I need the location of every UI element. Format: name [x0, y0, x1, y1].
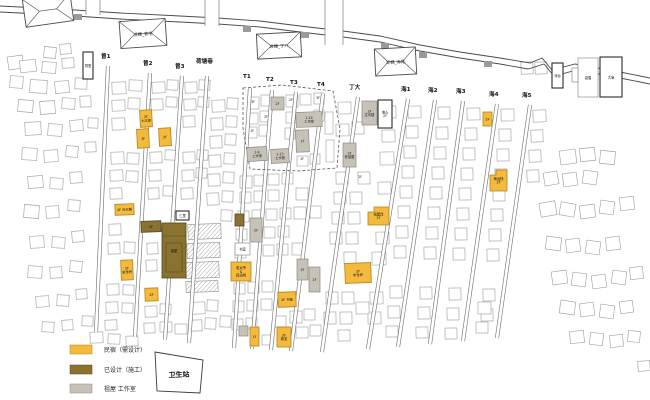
parcel — [344, 252, 356, 264]
building-w-34: 仁里 — [176, 211, 189, 220]
parcel — [457, 208, 469, 220]
pier — [86, 0, 100, 15]
parcel — [579, 147, 595, 161]
parcel — [304, 309, 315, 320]
parcel — [151, 99, 163, 110]
parcel — [326, 140, 334, 162]
building-g-22: 2F文青楼 — [362, 101, 377, 125]
parcel — [128, 98, 140, 109]
parcel — [62, 98, 76, 110]
parcel — [491, 209, 503, 221]
building-y-12: 海运栈2F — [490, 170, 507, 191]
parcel — [52, 237, 66, 249]
parcel — [501, 109, 514, 121]
parcel — [110, 170, 123, 181]
parcel — [296, 327, 308, 338]
parcel — [82, 316, 93, 326]
building-p-33: 书室 — [235, 243, 250, 255]
building-w-30: 戏台 — [552, 63, 563, 88]
parcel — [416, 327, 428, 338]
parcel — [476, 322, 488, 333]
building-g-24: 2F — [297, 259, 308, 280]
parcel — [145, 306, 157, 317]
parcel — [430, 187, 442, 199]
parcel — [220, 316, 231, 327]
building-g-23: 2F — [250, 218, 262, 242]
building-y-11: 祖屋改2F — [368, 207, 389, 225]
pavilions: 凉棚_曾宅凉棚_丁八凉棚_海尾 — [22, 0, 416, 76]
street-label: T4 — [317, 82, 325, 88]
parcel — [609, 334, 623, 347]
parcel — [497, 149, 509, 161]
parcel — [126, 171, 138, 182]
parcel — [66, 146, 79, 158]
parcel — [42, 62, 57, 74]
parcel — [48, 124, 63, 137]
building-b-16 — [235, 214, 244, 226]
street-lane — [96, 66, 108, 332]
parcel — [627, 330, 640, 342]
building-label: 新世界 — [353, 272, 364, 277]
parcel — [569, 330, 584, 343]
site-plan-svg: 凉棚_曾宅凉棚_丁八凉棚_海尾2F七太婆1F2F2F 白天鹅2F金世界2F老太爷… — [0, 0, 650, 400]
building-label: 2F — [149, 293, 153, 297]
parcel — [126, 336, 138, 346]
parcel — [268, 174, 279, 185]
dock-step — [419, 52, 427, 58]
parcel — [378, 182, 391, 194]
parcel — [88, 118, 98, 128]
parcel — [382, 130, 395, 142]
legend-label-studio: 祖屋 工作室 — [104, 385, 136, 393]
building-label: 2F — [377, 216, 381, 220]
parcel — [599, 304, 615, 319]
building-p-32: 祖厝 — [578, 58, 598, 97]
parcel — [107, 284, 119, 295]
building-label: 新发 — [281, 336, 288, 341]
building-g-21: 2F老祖屋 — [343, 143, 356, 167]
parcel — [325, 112, 333, 134]
parcel — [559, 149, 577, 165]
parcel — [10, 76, 24, 89]
parcel — [24, 204, 40, 218]
dock-step — [301, 32, 309, 38]
parcel — [551, 270, 568, 285]
parcel — [123, 285, 134, 295]
parcel — [531, 130, 543, 142]
parcel — [388, 306, 400, 318]
parcel — [221, 210, 232, 221]
legend-label-designed: 已设计（施工） — [104, 366, 146, 374]
parcel — [527, 170, 539, 182]
parcel — [390, 286, 402, 298]
parcel — [50, 178, 64, 190]
building-label: 金世界 — [122, 269, 133, 274]
building-label: 祖厝 — [585, 75, 592, 80]
parcel — [150, 152, 162, 163]
parcel — [402, 166, 414, 178]
parcel — [222, 191, 233, 202]
parcel — [46, 206, 60, 219]
parcel — [30, 80, 48, 94]
pavilion: 凉棚_海尾 — [374, 47, 416, 76]
parcel — [122, 303, 133, 313]
parcel — [449, 288, 461, 300]
parcel — [350, 192, 362, 204]
parcel — [165, 150, 176, 160]
parcel — [167, 80, 178, 90]
parcel — [579, 204, 596, 219]
parcel — [70, 120, 84, 132]
legend-swatch-designed — [70, 365, 92, 374]
parcel — [111, 152, 124, 164]
parcel — [181, 188, 193, 199]
building-label: 2F — [163, 135, 167, 139]
parcel — [57, 295, 70, 307]
parcel — [310, 325, 321, 336]
parcel — [266, 209, 277, 220]
parcel — [129, 80, 142, 91]
parcel — [183, 116, 195, 127]
building-label: 书室 — [239, 246, 246, 251]
building-y-9: 2F新发 — [277, 327, 291, 347]
building-label: 工作室 — [304, 119, 315, 124]
building-g-25: 2F — [309, 267, 320, 292]
parcel — [565, 238, 581, 253]
parcel — [611, 270, 627, 285]
parcel — [42, 322, 55, 333]
parcel — [30, 236, 45, 249]
parcel — [185, 82, 197, 93]
parcel — [478, 302, 491, 314]
building-label: 1F — [300, 139, 304, 143]
building-g-27: 2F — [271, 97, 284, 110]
parcel — [294, 207, 306, 219]
building-label: 2F 书屋 — [281, 297, 294, 302]
parcel — [386, 326, 398, 337]
parcel — [110, 188, 122, 199]
parcel — [60, 44, 72, 55]
legend-swatch-studio — [70, 384, 92, 393]
street-label: 海4 — [489, 90, 499, 98]
floor-label: 2F — [358, 175, 362, 179]
parcel — [310, 206, 321, 218]
parcel — [25, 122, 42, 136]
pavilion: 凉棚_曾宅 — [119, 18, 167, 48]
building-y-1: 1F — [137, 129, 150, 149]
street-label: 荷塘巷 — [196, 57, 213, 65]
parcel — [225, 134, 236, 145]
parcel — [108, 334, 120, 344]
building-label: 2F — [276, 102, 280, 106]
parcel — [346, 232, 358, 244]
parcel — [106, 302, 118, 313]
parcel — [184, 99, 196, 110]
street-label: 海5 — [522, 91, 532, 99]
parcel — [589, 332, 603, 345]
hatched-strip — [186, 261, 220, 278]
parcel — [149, 170, 161, 181]
parcel — [62, 58, 75, 69]
parcel — [348, 212, 360, 224]
parcel — [463, 148, 475, 160]
parcel — [146, 260, 157, 271]
parcel — [340, 312, 352, 324]
parcel — [264, 227, 275, 238]
building-y-3: 2F 白天鹅 — [115, 204, 134, 216]
legend: 民宿（需设计） 已设计（施工） 祖屋 工作室 — [70, 345, 146, 393]
parcel — [80, 96, 91, 107]
street-label: 曾3 — [175, 62, 185, 70]
parcel — [72, 231, 85, 243]
parcel — [76, 289, 88, 300]
pavilion — [22, 0, 73, 27]
building-g-17: 1-14工作室 — [296, 112, 323, 128]
parcel — [408, 106, 421, 118]
parcel — [50, 267, 63, 279]
parcel — [338, 102, 351, 114]
parcel — [599, 200, 615, 215]
parcel — [183, 152, 195, 163]
parcel — [489, 229, 501, 241]
parcel — [268, 190, 279, 201]
parcel — [152, 82, 165, 93]
building-label: 2F — [149, 225, 153, 229]
building-label: 2F — [313, 278, 317, 282]
building-w-31: 大庙 — [600, 57, 622, 97]
parcel — [342, 292, 354, 304]
building-p-35 — [572, 68, 578, 82]
street-label: 丁大 — [349, 83, 361, 91]
parcel — [459, 188, 471, 200]
building-label: 2F — [383, 114, 387, 118]
parcel — [22, 148, 38, 161]
building-label: 大庙 — [608, 74, 615, 79]
parcel — [571, 272, 587, 287]
parcel — [144, 323, 155, 333]
parcel — [192, 302, 205, 314]
parcel — [428, 207, 440, 219]
parcel — [432, 167, 444, 179]
parcel — [263, 245, 274, 256]
parcel — [90, 332, 103, 343]
parcel — [85, 142, 96, 152]
parcel — [18, 99, 34, 112]
street-label: 海2 — [428, 86, 438, 94]
parcel — [108, 243, 120, 254]
legend-label-minsu: 民宿（需设计） — [104, 346, 146, 354]
parcel — [44, 150, 59, 163]
parcel — [262, 281, 273, 292]
parcel — [543, 171, 559, 186]
building-b-14: 2F — [141, 221, 161, 233]
parcel — [398, 206, 410, 218]
parcel — [438, 107, 450, 119]
building-label: 2F — [301, 268, 305, 272]
hatched-area — [186, 223, 222, 292]
health-station: 卫生站 — [155, 352, 203, 393]
street-label: 海1 — [401, 85, 411, 93]
building-y-6: 老太爷&四志明 — [231, 262, 251, 281]
floor-label: 3F — [316, 96, 320, 100]
hatched-strip — [187, 242, 221, 258]
floor-label: 1F — [250, 129, 254, 133]
building-label: 2F — [497, 181, 501, 185]
parcel — [28, 175, 44, 188]
parcel — [562, 172, 578, 187]
floor-label: 2F — [264, 115, 268, 119]
parcel — [400, 186, 412, 198]
parcel — [223, 172, 234, 183]
legend-swatch-minsu — [70, 345, 92, 354]
parcel — [591, 274, 607, 289]
building-b-15: 祖屋 — [162, 223, 186, 278]
parcel — [436, 127, 448, 139]
floor-label: 3F — [251, 100, 255, 104]
building-y-4: 2F金世界 — [121, 260, 134, 280]
parcel — [453, 248, 465, 260]
parcel — [208, 174, 220, 186]
parcel — [336, 124, 349, 136]
parcel — [579, 302, 595, 317]
street-label: 海3 — [456, 87, 466, 95]
building-label: 祠堂 — [85, 63, 92, 68]
parcel — [105, 320, 117, 330]
parcel — [420, 287, 432, 299]
parcel — [166, 97, 177, 107]
parcel — [212, 100, 225, 112]
parcel — [535, 62, 547, 74]
parcel — [487, 249, 499, 261]
dock-step — [243, 26, 251, 32]
parcel — [210, 136, 222, 148]
parcel — [394, 246, 406, 258]
parcel — [629, 266, 643, 279]
parcel — [638, 361, 650, 372]
parcel — [396, 226, 408, 238]
parcel — [40, 100, 56, 114]
parcel — [447, 308, 459, 320]
parcel — [127, 153, 139, 164]
parcel — [404, 146, 416, 158]
parcel — [529, 150, 541, 162]
building-y-7: 2F 书屋 — [278, 292, 297, 308]
parcel — [619, 300, 634, 314]
parcel — [559, 300, 576, 315]
parcel — [62, 320, 74, 331]
parcel — [211, 118, 223, 130]
parcel — [19, 59, 36, 73]
parcel — [44, 46, 57, 58]
parcel — [406, 126, 418, 138]
parcel — [55, 80, 70, 93]
building-label: 四志明 — [236, 273, 247, 278]
parcel — [209, 155, 221, 167]
parcel — [147, 243, 158, 254]
parcel — [545, 236, 562, 251]
parcel — [356, 302, 369, 314]
parcel — [175, 324, 187, 334]
parcel — [455, 228, 467, 240]
parcel — [418, 307, 430, 319]
parcel — [619, 196, 634, 210]
building-y-10: 2F新世界 — [345, 263, 372, 284]
building-g-18: 1F — [296, 130, 310, 152]
parcel — [112, 82, 126, 94]
pier — [205, 0, 219, 26]
parcel — [112, 100, 125, 111]
street-label: T1 — [243, 74, 251, 80]
pavilion: 凉棚_丁八 — [256, 32, 301, 59]
parcel — [461, 168, 473, 180]
parcel — [70, 172, 83, 184]
parcel — [109, 224, 121, 235]
parcel — [68, 200, 81, 212]
floor-label: 1F — [300, 157, 304, 161]
hatched-strip — [188, 223, 222, 239]
parcel — [499, 129, 511, 141]
parcel — [28, 266, 43, 279]
building-label: 2F — [254, 228, 258, 232]
parcel — [296, 188, 308, 200]
building-y-5: 2F — [145, 288, 158, 301]
street-lane — [165, 76, 182, 340]
parcel — [124, 242, 135, 253]
parcel — [300, 94, 311, 105]
parcel — [585, 240, 601, 255]
parcel — [70, 261, 83, 273]
building-label: 工作室 — [275, 155, 286, 161]
parcel — [207, 193, 219, 205]
dock-step — [484, 61, 492, 67]
street-label: 曾1 — [101, 52, 111, 60]
health-station-label: 卫生站 — [168, 369, 189, 379]
parcel — [539, 201, 557, 218]
parcel — [338, 330, 350, 341]
building-g-20: 1-13工作室 — [271, 149, 290, 164]
parcel — [380, 152, 394, 165]
parcel — [205, 318, 216, 329]
parcel — [605, 236, 621, 251]
building-label: 1F — [253, 335, 257, 339]
building-label: 老祖屋 — [345, 154, 356, 159]
parcel — [426, 227, 438, 239]
parcel — [112, 118, 125, 130]
site-plan: 凉棚_曾宅凉棚_丁八凉棚_海尾2F七太婆1F2F2F 白天鹅2F金世界2F老太爷… — [0, 0, 650, 400]
building-w-29: 海心2F — [378, 100, 392, 128]
building-label: 七太婆 — [141, 117, 152, 123]
building-label: 祖屋 — [171, 248, 178, 253]
building-y-8: 1F — [250, 327, 259, 346]
parcel — [434, 147, 446, 159]
building-y-2: 2F — [159, 128, 172, 147]
building-label: 仁里 — [179, 213, 186, 218]
parcel — [224, 153, 235, 164]
building-y-13: 2F — [483, 112, 492, 126]
parcel — [582, 170, 598, 185]
street-label: T3 — [290, 80, 298, 86]
building-y-0: 2F七太婆 — [140, 110, 153, 128]
parcel — [182, 170, 194, 181]
street-label: T2 — [266, 77, 274, 83]
parcel — [226, 116, 237, 127]
street-label: 曾2 — [143, 59, 153, 67]
pier — [325, 0, 343, 45]
parcel — [261, 299, 272, 310]
building-label: 1F — [141, 137, 145, 141]
parcel — [445, 328, 457, 339]
parcel — [148, 188, 159, 199]
